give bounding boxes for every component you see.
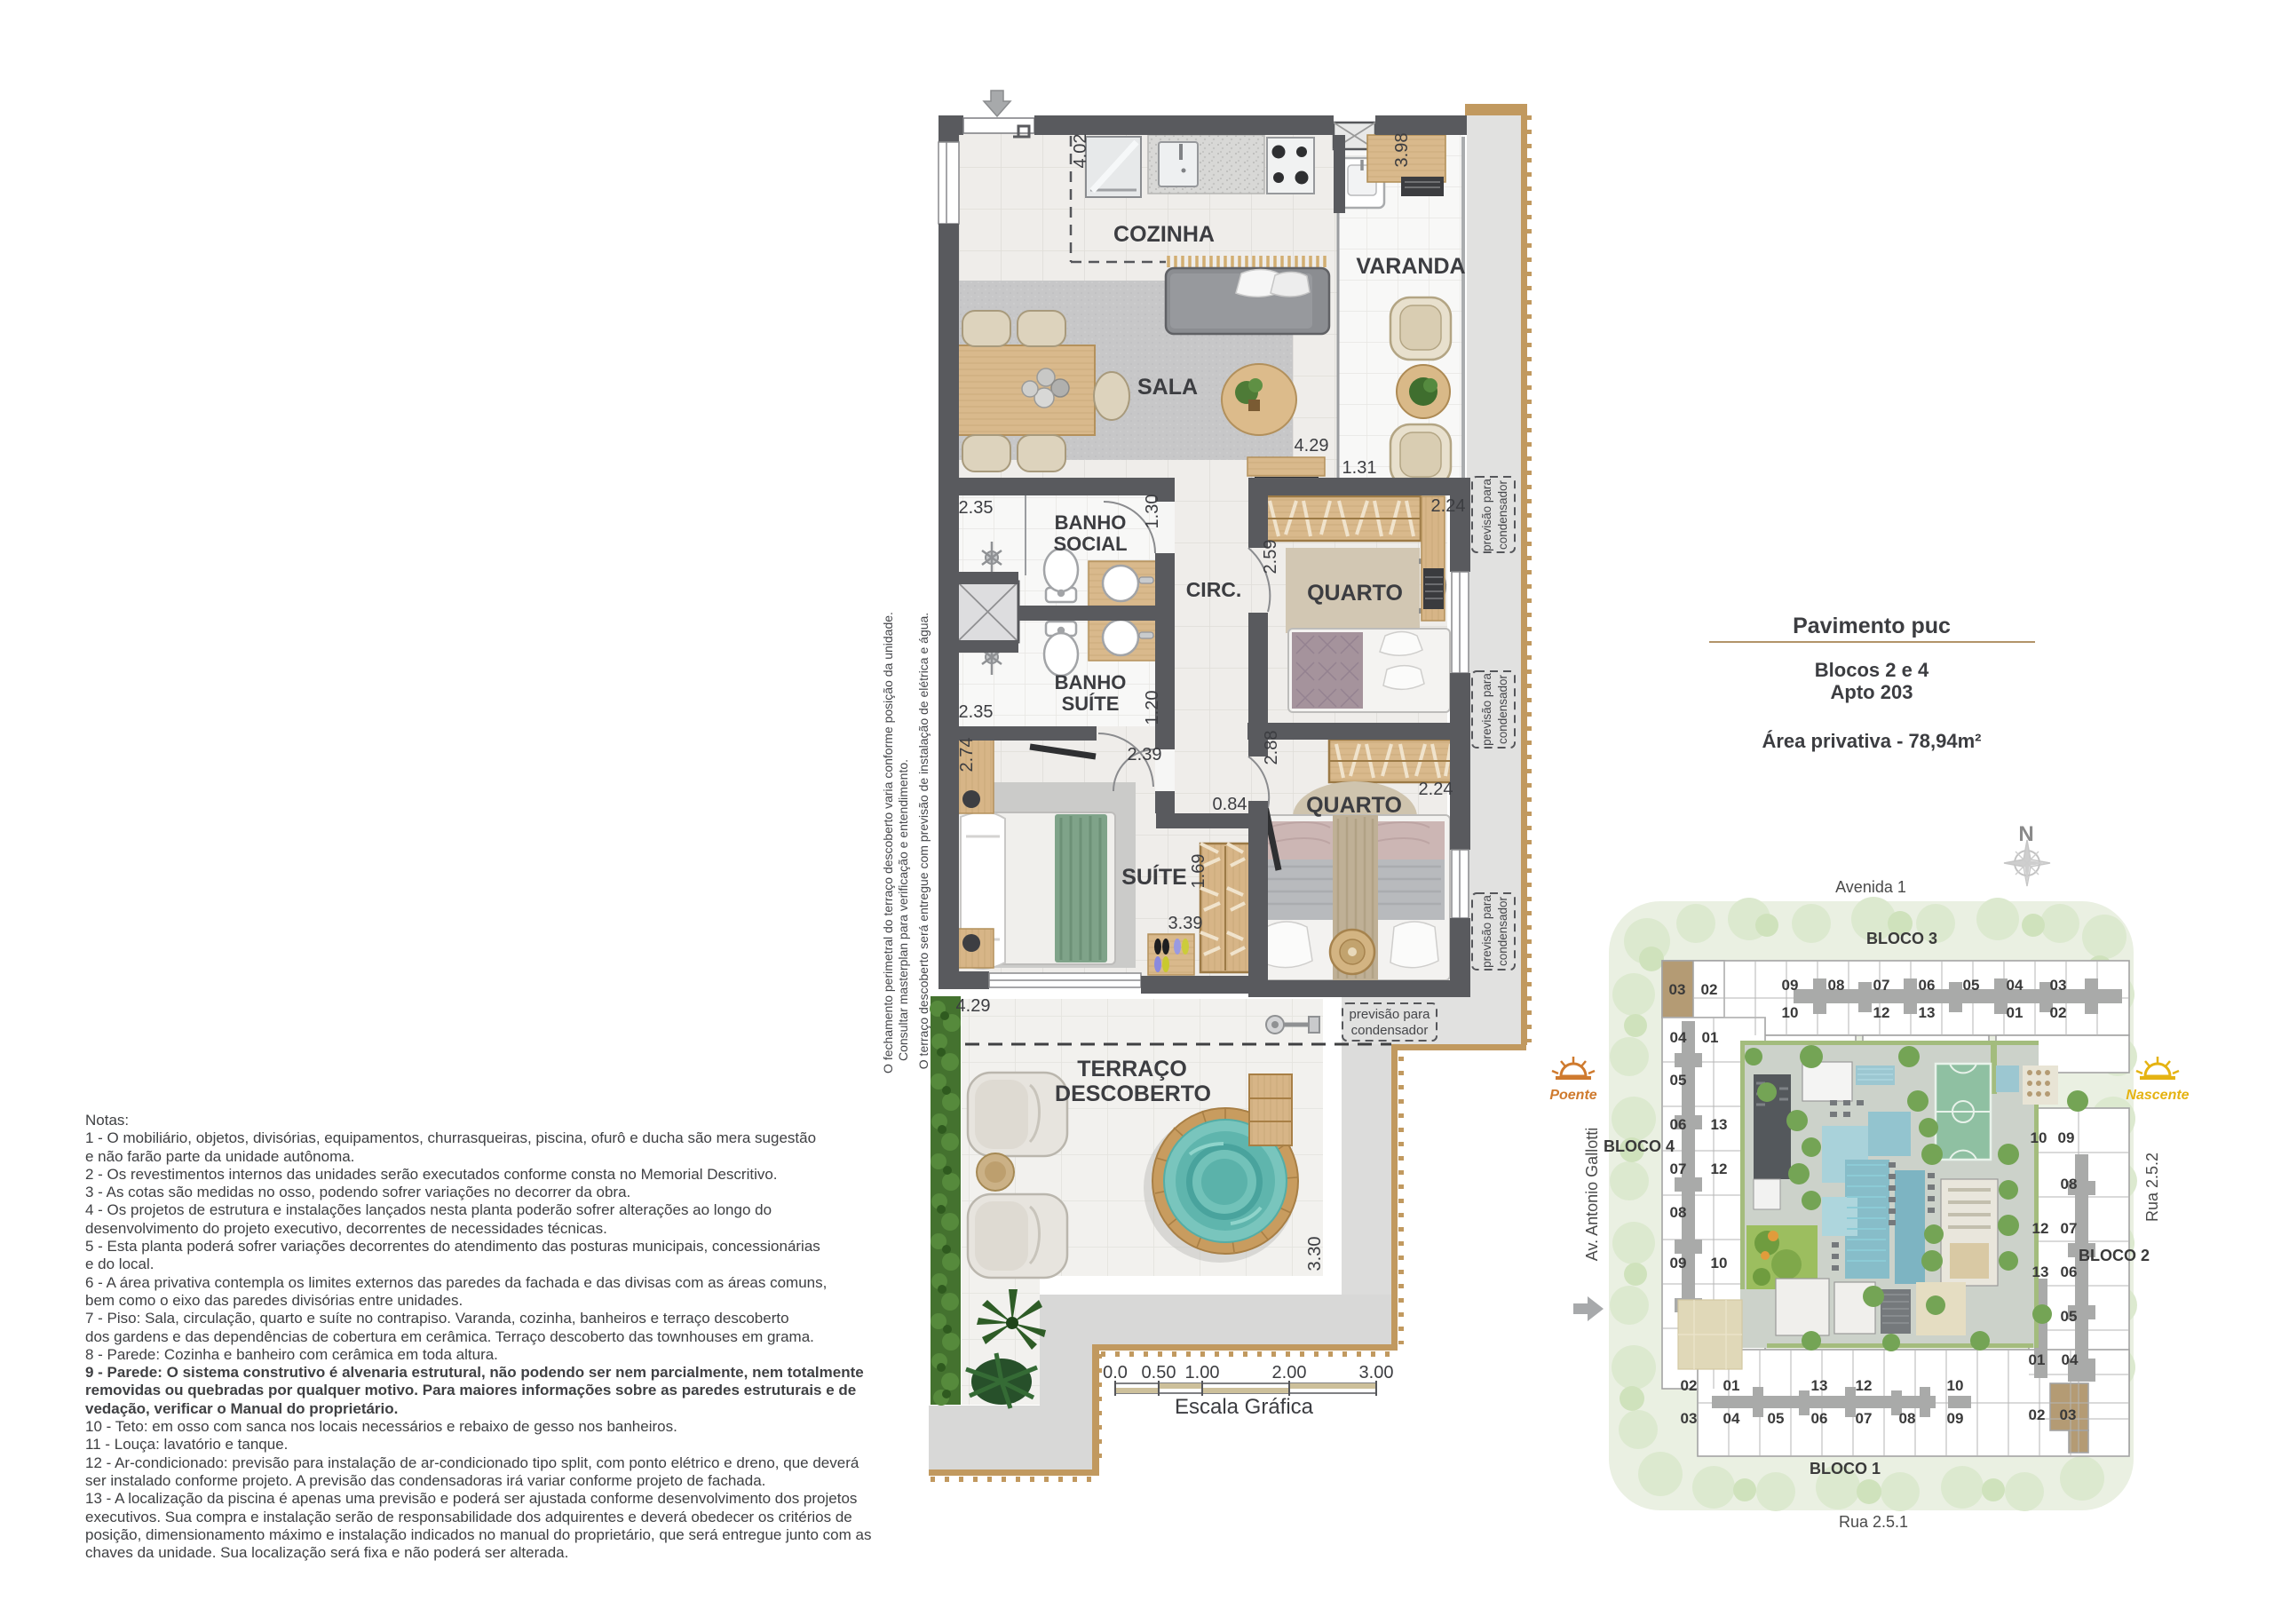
svg-text:08: 08 — [1828, 977, 1845, 994]
svg-text:07: 07 — [1670, 1161, 1687, 1177]
svg-text:SUÍTE: SUÍTE — [1121, 864, 1187, 890]
svg-text:0.84: 0.84 — [1213, 795, 1247, 814]
svg-text:Consultar masterplan para veri: Consultar masterplan para verificação e … — [896, 759, 910, 1061]
svg-text:10: 10 — [1947, 1377, 1964, 1394]
svg-text:Escala Gráfica: Escala Gráfica — [1175, 1395, 1314, 1419]
svg-text:06: 06 — [1670, 1116, 1687, 1133]
svg-text:2.39: 2.39 — [1128, 745, 1162, 764]
svg-text:04: 04 — [2062, 1351, 2079, 1368]
svg-text:previsão para: previsão para — [1480, 479, 1493, 551]
svg-text:07: 07 — [2061, 1220, 2078, 1237]
svg-text:Nascente: Nascente — [2126, 1088, 2189, 1103]
svg-text:BANHO: BANHO — [1055, 511, 1127, 534]
svg-text:SALA: SALA — [1137, 375, 1198, 400]
svg-text:previsão para: previsão para — [1480, 895, 1493, 968]
svg-text:04: 04 — [1723, 1410, 1740, 1427]
svg-text:08: 08 — [1899, 1410, 1916, 1427]
svg-text:Poente: Poente — [1549, 1088, 1596, 1103]
svg-text:09: 09 — [1947, 1410, 1964, 1427]
svg-text:BANHO: BANHO — [1055, 671, 1127, 693]
svg-text:condensador: condensador — [1496, 674, 1509, 744]
svg-text:BLOCO 4: BLOCO 4 — [1604, 1137, 1675, 1155]
svg-text:4.29: 4.29 — [1295, 436, 1329, 456]
svg-text:05: 05 — [1670, 1072, 1687, 1089]
svg-text:01: 01 — [2007, 1004, 2024, 1021]
svg-text:QUARTO: QUARTO — [1306, 793, 1402, 818]
svg-text:1.20: 1.20 — [1143, 691, 1162, 725]
svg-text:03: 03 — [1681, 1410, 1698, 1427]
svg-text:09: 09 — [1670, 1255, 1687, 1271]
svg-text:01: 01 — [2029, 1351, 2046, 1368]
svg-text:2.00: 2.00 — [1272, 1363, 1307, 1382]
svg-text:13: 13 — [1811, 1377, 1828, 1394]
svg-text:07: 07 — [1856, 1410, 1873, 1427]
svg-text:0.0: 0.0 — [1103, 1363, 1128, 1382]
svg-text:1.31: 1.31 — [1342, 458, 1377, 478]
svg-text:2.88: 2.88 — [1262, 731, 1281, 765]
svg-text:10: 10 — [1711, 1255, 1728, 1271]
svg-text:Avenida 1: Avenida 1 — [1835, 878, 1906, 896]
svg-text:SOCIAL: SOCIAL — [1053, 533, 1127, 555]
svg-text:BLOCO 2: BLOCO 2 — [2079, 1247, 2150, 1264]
svg-text:01: 01 — [1723, 1377, 1740, 1394]
svg-text:previsão para: previsão para — [1350, 1007, 1431, 1022]
svg-text:Rua 2.5.2: Rua 2.5.2 — [2143, 1153, 2161, 1222]
svg-text:2.74: 2.74 — [957, 738, 977, 772]
svg-text:0.50: 0.50 — [1142, 1363, 1176, 1382]
svg-text:2.24: 2.24 — [1419, 780, 1453, 799]
svg-text:01: 01 — [1702, 1029, 1719, 1046]
svg-text:1.00: 1.00 — [1185, 1363, 1220, 1382]
svg-text:COZINHA: COZINHA — [1113, 222, 1215, 247]
svg-text:06: 06 — [1919, 977, 1936, 994]
svg-text:VARANDA: VARANDA — [1356, 254, 1465, 279]
svg-text:2.35: 2.35 — [959, 702, 994, 722]
svg-text:06: 06 — [2061, 1264, 2078, 1280]
svg-text:QUARTO: QUARTO — [1307, 581, 1403, 606]
svg-text:04: 04 — [1670, 1029, 1687, 1046]
svg-text:10: 10 — [1782, 1004, 1799, 1021]
svg-text:3.30: 3.30 — [1305, 1237, 1325, 1271]
svg-text:CIRC.: CIRC. — [1186, 578, 1242, 601]
svg-text:03: 03 — [2050, 977, 2067, 994]
svg-text:02: 02 — [2029, 1406, 2046, 1423]
svg-text:Rua 2.5.1: Rua 2.5.1 — [1839, 1513, 1908, 1531]
svg-text:10: 10 — [2031, 1129, 2047, 1146]
svg-text:previsão para: previsão para — [1480, 673, 1493, 746]
svg-text:02: 02 — [1701, 981, 1718, 998]
svg-text:condensador: condensador — [1496, 896, 1509, 966]
svg-text:1.69: 1.69 — [1189, 854, 1208, 889]
svg-text:BLOCO 1: BLOCO 1 — [1810, 1460, 1881, 1477]
svg-text:O fechamento perimetral do ter: O fechamento perimetral do terraço desco… — [881, 612, 895, 1073]
svg-text:SUÍTE: SUÍTE — [1062, 693, 1120, 715]
svg-text:09: 09 — [2058, 1129, 2075, 1146]
svg-text:DESCOBERTO: DESCOBERTO — [1055, 1081, 1211, 1106]
svg-text:3.98: 3.98 — [1392, 133, 1412, 168]
svg-text:4.02: 4.02 — [1071, 134, 1090, 169]
svg-text:08: 08 — [2061, 1176, 2078, 1192]
svg-text:02: 02 — [1681, 1377, 1698, 1394]
svg-text:Av. Antonio Gallotti: Av. Antonio Gallotti — [1583, 1128, 1601, 1261]
svg-text:02: 02 — [2050, 1004, 2067, 1021]
svg-text:3.39: 3.39 — [1168, 914, 1203, 933]
svg-text:05: 05 — [1768, 1410, 1785, 1427]
svg-text:04: 04 — [2007, 977, 2024, 994]
svg-text:06: 06 — [1811, 1410, 1828, 1427]
svg-text:13: 13 — [2032, 1264, 2049, 1280]
svg-text:03: 03 — [1669, 981, 1686, 998]
svg-text:09: 09 — [1782, 977, 1799, 994]
svg-text:2.59: 2.59 — [1261, 540, 1280, 574]
svg-text:08: 08 — [1670, 1204, 1687, 1221]
svg-text:O terraço descoberto será entr: O terraço descoberto será entregue com p… — [916, 613, 931, 1069]
svg-text:12: 12 — [1873, 1004, 1890, 1021]
svg-text:2.35: 2.35 — [959, 498, 994, 518]
svg-text:05: 05 — [1963, 977, 1980, 994]
svg-text:3.00: 3.00 — [1359, 1363, 1394, 1382]
svg-text:13: 13 — [1711, 1116, 1728, 1133]
svg-text:12: 12 — [1711, 1161, 1728, 1177]
svg-text:12: 12 — [1856, 1377, 1873, 1394]
svg-text:07: 07 — [1873, 977, 1890, 994]
svg-text:03: 03 — [2060, 1406, 2077, 1423]
svg-text:05: 05 — [2061, 1308, 2078, 1325]
svg-text:13: 13 — [1919, 1004, 1936, 1021]
svg-text:condensador: condensador — [1496, 479, 1509, 550]
svg-text:condensador: condensador — [1351, 1023, 1429, 1038]
svg-text:2.24: 2.24 — [1431, 496, 1466, 516]
svg-text:12: 12 — [2032, 1220, 2049, 1237]
svg-text:1.30: 1.30 — [1143, 495, 1162, 529]
svg-text:BLOCO 3: BLOCO 3 — [1866, 930, 1937, 947]
svg-text:4.29: 4.29 — [956, 996, 991, 1016]
svg-text:TERRAÇO: TERRAÇO — [1077, 1057, 1187, 1081]
